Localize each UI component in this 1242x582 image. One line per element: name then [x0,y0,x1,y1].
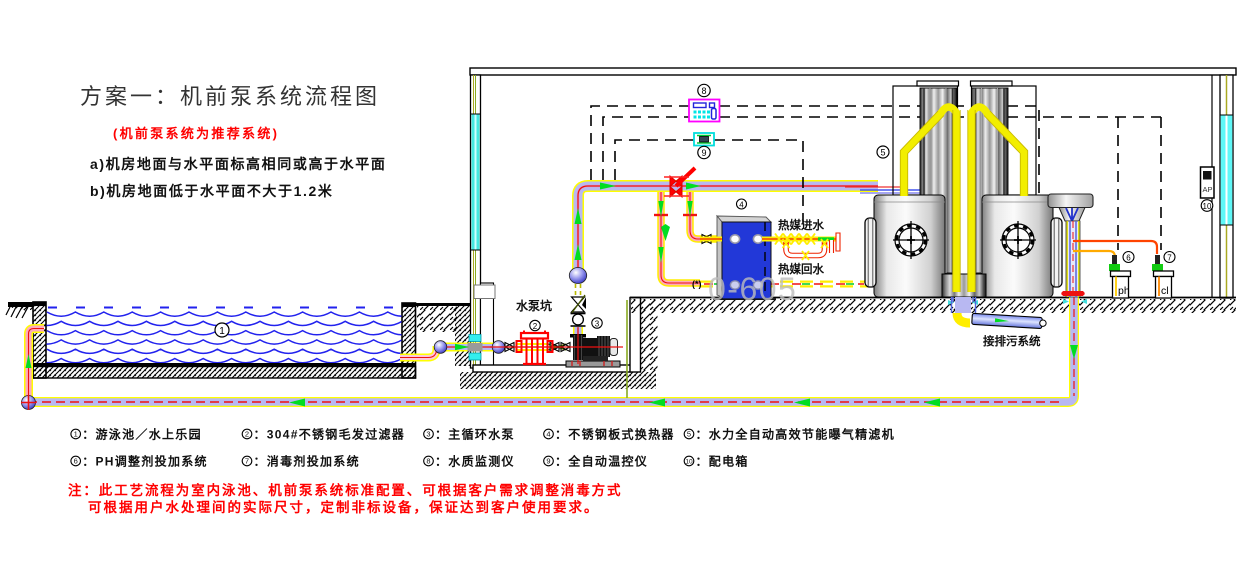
svg-text:9: 9 [701,148,706,158]
svg-text:8: 8 [426,457,430,466]
svg-text:10: 10 [1203,202,1212,211]
svg-text:5: 5 [687,430,691,439]
svg-text:：配电箱: ：配电箱 [696,454,749,469]
svg-text:水泵坑: 水泵坑 [516,298,552,313]
svg-text:：主循环水泵: ：主循环水泵 [435,427,515,442]
svg-text:：游泳池／水上乐园: ：游泳池／水上乐园 [82,427,202,442]
svg-text:6: 6 [74,457,78,466]
svg-text:6: 6 [1126,254,1131,263]
svg-text:：全自动温控仪: ：全自动温控仪 [555,454,648,469]
svg-text:9: 9 [546,457,550,466]
svg-text:ph: ph [1118,285,1130,297]
svg-text:：304#不锈钢毛发过滤器: ：304#不锈钢毛发过滤器 [254,427,406,442]
svg-text:2: 2 [245,430,249,439]
svg-text:可根据用户水处理间的实际尺寸，定制非标设备，保证达到客户使用: 可根据用户水处理间的实际尺寸，定制非标设备，保证达到客户使用要求。 [88,499,600,515]
svg-text:7: 7 [245,457,249,466]
svg-text:热媒进水: 热媒进水 [778,218,824,232]
svg-text:7: 7 [1167,254,1172,263]
svg-text:注：此工艺流程为室内泳池、机前泵系统标准配置、可根据客户需求: 注：此工艺流程为室内泳池、机前泵系统标准配置、可根据客户需求调整消毒方式 [68,482,622,498]
svg-text:4: 4 [546,430,550,439]
svg-text:接排污系统: 接排污系统 [983,334,1041,348]
svg-text:2: 2 [533,322,538,331]
svg-text:：PH调整剂投加系统: ：PH调整剂投加系统 [82,454,208,469]
svg-text:：消毒剂投加系统: ：消毒剂投加系统 [254,454,360,469]
svg-text:1: 1 [219,326,225,337]
svg-text:0-605: 0-605 [708,271,797,307]
svg-text:：不锈钢板式换热器: ：不锈钢板式换热器 [555,427,675,442]
svg-text:3: 3 [426,430,430,439]
svg-text:：水质监测仪: ：水质监测仪 [435,454,515,469]
svg-text:b)机房地面低于水平面不大于1.2米: b)机房地面低于水平面不大于1.2米 [90,183,333,199]
svg-text:10: 10 [685,459,693,466]
svg-text:cl: cl [1161,285,1169,297]
svg-text:3: 3 [595,319,600,328]
svg-text:5: 5 [880,148,885,158]
svg-text:：水力全自动高效节能曝气精滤机: ：水力全自动高效节能曝气精滤机 [696,427,896,442]
svg-text:(*): (*) [692,279,702,289]
svg-text:方案一：机前泵系统流程图: 方案一：机前泵系统流程图 [80,84,380,109]
svg-text:4: 4 [739,200,744,209]
svg-text:(机前泵系统为推荐系统): (机前泵系统为推荐系统) [113,126,279,141]
svg-text:1: 1 [74,430,78,439]
svg-text:AP: AP [1203,185,1213,194]
svg-text:a)机房地面与水平面标高相同或高于水平面: a)机房地面与水平面标高相同或高于水平面 [90,156,386,172]
svg-text:8: 8 [701,86,706,96]
